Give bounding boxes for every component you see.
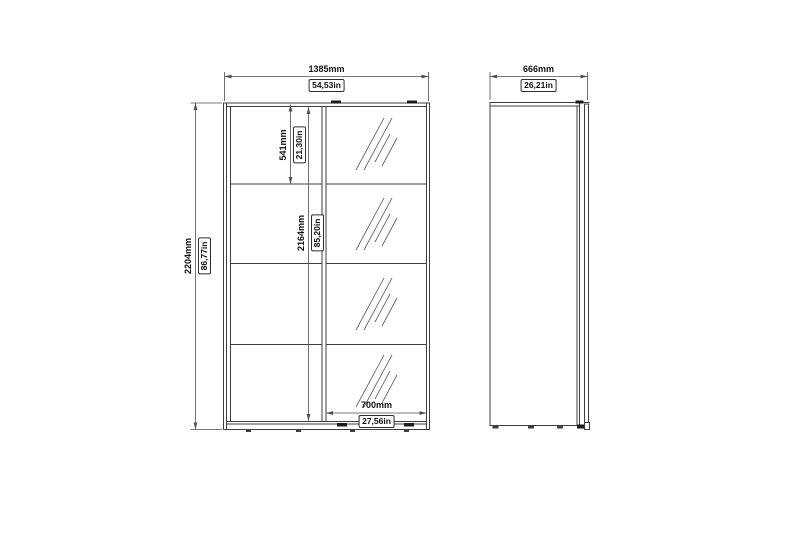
side-view-drawing — [490, 101, 590, 430]
overall-width-inch: 54,53in — [308, 79, 345, 92]
overall-height-inch: 86,77in — [198, 238, 211, 275]
drawing-canvas: 1385mm 54,53in 666mm 26,21in 2204mm 86,7… — [0, 0, 800, 533]
interior-height-mm: 2164mm — [296, 215, 307, 251]
interior-height-inch: 85,20in — [311, 215, 324, 252]
door-width-mm: 700mm — [361, 400, 392, 411]
overall-depth-mm: 666mm — [523, 64, 554, 75]
door-width-inch: 27,56in — [358, 415, 395, 428]
overall-height-mm: 2204mm — [183, 238, 194, 274]
dimension-label-interior-height: 2164mm 85,20in — [296, 215, 324, 252]
overall-width-mm: 1385mm — [308, 64, 344, 75]
front-view-drawing — [224, 101, 430, 433]
side-door-top-bracket — [576, 101, 584, 104]
mirror-hatching — [356, 118, 397, 407]
side-door-bottom-guide — [585, 423, 590, 430]
top-section-mm: 541mm — [278, 129, 289, 160]
side-door-bottom-bracket — [577, 425, 584, 429]
side-door-panel — [585, 104, 589, 423]
dim-interior-height — [307, 107, 311, 421]
dimension-lines — [191, 72, 588, 430]
side-body-outline — [490, 103, 580, 426]
wardrobe-technical-drawing — [0, 0, 800, 533]
dimension-label-overall-depth: 666mm 26,21in — [520, 64, 557, 92]
dimension-label-overall-height: 2204mm 86,77in — [183, 238, 211, 275]
dimension-label-door-width: 700mm 27,56in — [358, 400, 395, 428]
dimension-label-top-section: 541mm 21,30in — [278, 127, 306, 164]
overall-depth-inch: 26,21in — [520, 79, 557, 92]
dimension-label-overall-width: 1385mm 54,53in — [308, 64, 345, 92]
top-section-inch: 21,30in — [293, 127, 306, 164]
